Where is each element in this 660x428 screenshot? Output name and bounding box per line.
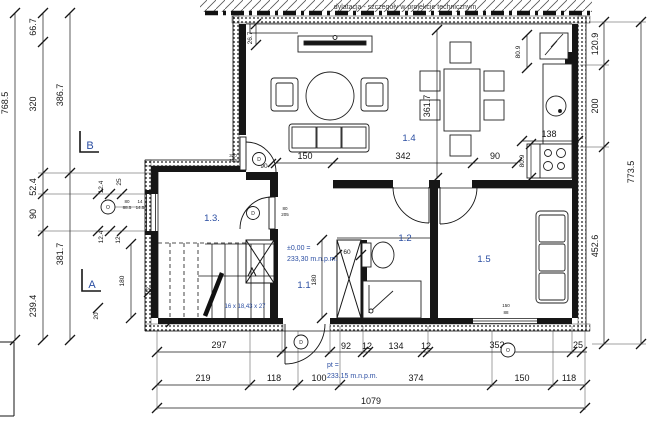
dim-150-b: 150	[514, 373, 529, 383]
dim-80-9-kitchen: 80.9	[519, 154, 526, 167]
dim-200: 200	[590, 98, 600, 113]
dim-80-9-top: 80.9	[515, 45, 522, 58]
hob-burner-2	[557, 149, 566, 158]
dining-chair-r1	[484, 71, 504, 91]
dim-374: 374	[408, 373, 423, 383]
jamb-entry-left	[278, 318, 283, 324]
insulation-bottom-right	[330, 324, 590, 331]
shower-drain	[369, 309, 373, 313]
window-bottom-15	[473, 319, 537, 324]
dim-1079: 1079	[361, 396, 381, 406]
room-label-12: 1.2	[398, 233, 411, 244]
dim-winleft-f2: 88.5	[123, 205, 132, 210]
floor-plan-drawing: dylatacja - szczegóły w projekcie techni…	[0, 0, 660, 428]
wall-12-15-divider	[430, 188, 438, 318]
dim-right-total: 773.5	[626, 161, 636, 184]
hob-burner-3	[544, 162, 553, 171]
dim-door13-f2: 205	[281, 212, 289, 217]
stairs-break-line	[205, 273, 222, 316]
dim-90-mid: 90	[490, 151, 500, 161]
insulation-left-upper	[233, 16, 239, 162]
dining-chair-top	[450, 42, 471, 63]
hob-burner-4	[558, 163, 565, 170]
bubble-door-13-label: D	[251, 211, 255, 217]
jamb-entry-right	[330, 318, 335, 324]
level-zero-line1: ±0,00 =	[287, 245, 311, 252]
room-label-15: 1.5	[477, 254, 490, 265]
dim-winleft-f4: 14.5	[136, 205, 145, 210]
dim-219: 219	[195, 373, 210, 383]
jamb-door15	[472, 180, 477, 188]
dim-66-7: 66.7	[28, 18, 38, 36]
dim-12-c1: 12	[362, 341, 372, 351]
dim-winleft-f1: 80	[124, 199, 130, 204]
dim-180-stairs: 180	[119, 275, 126, 286]
kitchen-sink	[546, 96, 566, 116]
dim-left-total: 768.5	[0, 92, 10, 115]
wall-13-top	[246, 172, 278, 180]
wall-mid-top	[151, 166, 246, 172]
dim-320: 320	[28, 96, 38, 111]
dining-table	[444, 69, 480, 131]
wc-bowl	[372, 242, 394, 268]
dim-297: 297	[211, 340, 226, 350]
insulation-right	[578, 16, 586, 331]
dim-25-b: 25	[145, 287, 153, 294]
dim-138: 138	[541, 129, 556, 139]
sofa-cushion-2	[317, 127, 341, 148]
bubble-window-left-label: O	[106, 205, 110, 211]
tv-screen	[304, 41, 366, 45]
section-a-label: A	[88, 279, 96, 291]
dim-118-a: 118	[267, 373, 281, 383]
section-markers: B A	[80, 131, 101, 291]
room-label-14: 1.4	[402, 133, 415, 144]
room-label-13: 1.3.	[204, 213, 220, 224]
dim-60-shaft: 60	[343, 249, 351, 256]
sofa-15-cushion-1	[539, 215, 565, 242]
door-15	[440, 187, 477, 224]
tv-mount	[333, 36, 337, 40]
insulation-left-lower	[145, 160, 151, 331]
dining-chair-bottom	[450, 135, 471, 156]
jamb-window-left-top	[145, 190, 158, 194]
dim-25-a: 25	[116, 178, 123, 186]
armchair-right-seat	[366, 83, 383, 106]
wall-bottom-c	[537, 318, 572, 324]
wall-bottom-a	[158, 318, 283, 324]
wall-left-upper	[239, 24, 246, 135]
bubble-terrace-door-label: D	[257, 157, 261, 163]
door-12	[393, 187, 429, 223]
dim-terrace-f2: 235	[229, 158, 237, 163]
jamb-window-left-bottom	[145, 231, 158, 235]
dim-26-7: 26.7	[247, 31, 254, 44]
sofa-cushion-1	[292, 127, 316, 148]
dim-door13-f1: 80	[282, 206, 288, 211]
sofa-15-cushion-2	[539, 244, 565, 271]
insulation-top	[232, 16, 590, 23]
sink-drain	[559, 110, 562, 113]
shaft-chimney	[246, 240, 274, 283]
dim-342: 342	[395, 151, 410, 161]
wall-interior-a	[333, 180, 393, 188]
dim-12-4-b: 12.4	[98, 230, 105, 243]
dim-90-left: 90	[28, 209, 38, 219]
dim-120-9: 120.9	[590, 33, 600, 56]
dim-452-6: 452.6	[590, 235, 600, 258]
dim-239-4: 239.4	[28, 295, 38, 318]
dim-381-7: 381.7	[55, 243, 65, 266]
wall-interior-b	[477, 180, 572, 188]
dylatacja-note: dylatacja - szczegóły w projekcie techni…	[334, 4, 477, 11]
dim-winbottom-f2: 88	[503, 310, 509, 315]
stairs-label: 16 x 18,43 x 27	[224, 304, 266, 310]
dim-25-c: 25	[573, 340, 583, 350]
level-pt-line1: pt =	[327, 362, 339, 369]
dim-180-bath: 180	[311, 274, 318, 285]
dining-chair-r2	[484, 100, 504, 120]
floor-plan-page: dylatacja - szczegóły w projekcie techni…	[0, 0, 660, 428]
sofa-cushion-3	[342, 127, 366, 148]
bubble-entry-door-label: D	[299, 340, 303, 346]
wall-13-door-top	[270, 180, 278, 197]
level-pt-line2: 233.15 m.n.p.m.	[327, 373, 378, 380]
wall-left-lower-b	[151, 231, 158, 318]
section-b-label: B	[86, 140, 93, 152]
insulation-bottom-left	[145, 324, 283, 331]
hob-burner-1	[545, 150, 552, 157]
dylatacja-zone: dylatacja - szczegóły w projekcie techni…	[200, 0, 592, 13]
dim-150: 150	[297, 151, 312, 161]
hob-counter	[527, 144, 572, 178]
coffee-table	[306, 72, 354, 120]
fridge	[540, 33, 568, 59]
sofa-15-cushion-3	[539, 273, 565, 300]
dim-12-c2: 12	[421, 341, 431, 351]
dim-20-b: 20	[168, 320, 174, 326]
dim-100: 100	[311, 373, 326, 383]
wc-tank	[362, 243, 371, 267]
dim-12: 12	[115, 236, 122, 244]
dim-92: 92	[341, 341, 351, 351]
dim-134: 134	[388, 341, 403, 351]
level-zero-line2: 233,30 m.n.p.m.	[287, 256, 338, 263]
wall-right	[572, 24, 578, 318]
jamb-door12	[388, 180, 393, 188]
dim-361-7: 361.7	[422, 95, 432, 118]
room-label-11: 1.1	[297, 280, 310, 291]
dim-winbottom-f1: 150	[502, 303, 510, 308]
bubble-window-bottom-label: O	[506, 348, 510, 354]
face-tv-recess	[250, 24, 298, 33]
dim-386-7: 386.7	[55, 84, 65, 107]
wall-bottom-b	[330, 318, 473, 324]
dim-winleft-f3: 14	[137, 199, 143, 204]
legend-box-partial	[0, 342, 14, 416]
dim-52-4: 52.4	[28, 178, 38, 196]
dim-12-4-a: 12.4	[98, 180, 105, 193]
dim-118-b: 118	[562, 373, 576, 383]
armchair-left-seat	[276, 83, 293, 106]
dim-20: 20	[93, 312, 100, 320]
